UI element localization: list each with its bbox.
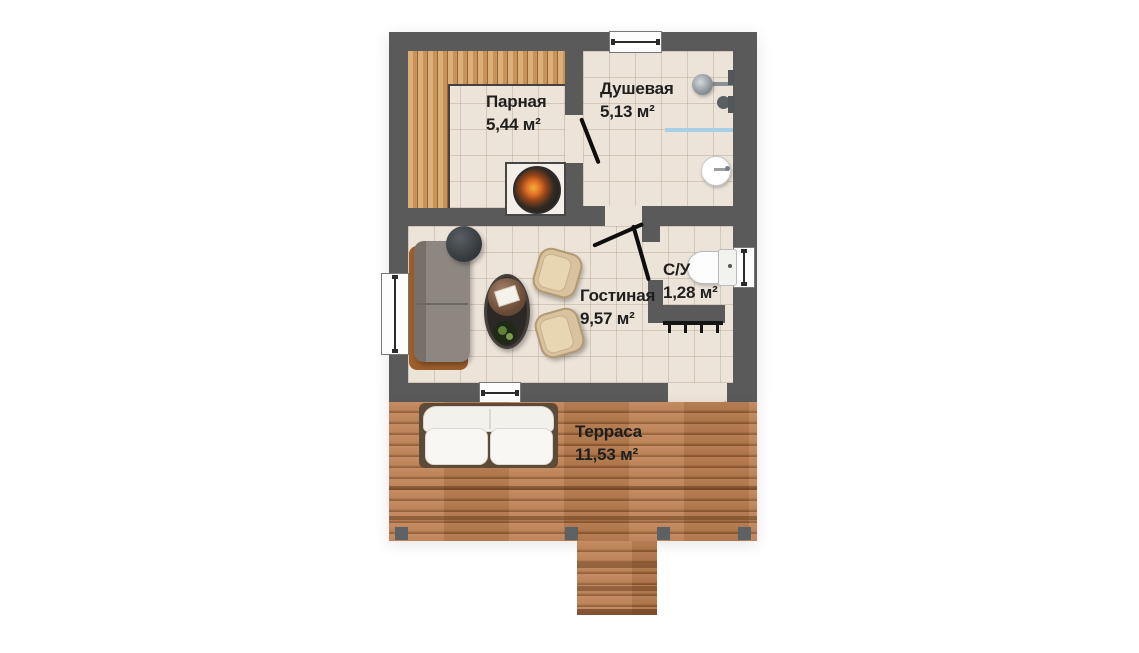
step-edge — [577, 609, 657, 615]
steps-icon — [577, 541, 657, 615]
floor-plan: Парная 5,44 м² Душевая 5,13 м² Гостиная … — [0, 0, 1139, 653]
dushevaya-door-gap — [605, 206, 642, 226]
shower-head-icon — [692, 74, 713, 95]
deck-post-icon — [657, 527, 670, 540]
sink-icon — [701, 156, 731, 186]
deck-seam — [389, 486, 757, 490]
bench-edge — [448, 84, 450, 208]
deck-post-icon — [395, 527, 408, 540]
room-label-gostinaya: Гостиная 9,57 м² — [580, 284, 655, 330]
room-area: 5,13 м² — [600, 100, 674, 123]
shower-glass-icon — [665, 128, 733, 132]
shower-wall-mount — [728, 70, 735, 85]
room-name: Парная — [486, 90, 547, 113]
sauna-bench-top — [448, 51, 565, 84]
plant-leaf — [506, 333, 513, 340]
window-icon — [609, 31, 662, 53]
room-area: 5,44 м² — [486, 113, 547, 136]
window-icon — [479, 382, 521, 403]
radiator-icon — [663, 321, 723, 325]
room-name: Терраса — [575, 420, 642, 443]
sink-faucet-dot — [725, 166, 730, 171]
room-area: 11,53 м² — [575, 443, 642, 466]
toilet-tank — [718, 249, 737, 286]
room-label-dushevaya: Душевая 5,13 м² — [600, 77, 674, 123]
wall-su-stub — [642, 226, 660, 242]
step-edge — [577, 563, 657, 568]
shower-wall-mount — [728, 96, 735, 113]
room-area: 9,57 м² — [580, 307, 655, 330]
room-name: С/У — [663, 258, 718, 281]
room-name: Гостиная — [580, 284, 655, 307]
terrace-sofa-cushion — [490, 428, 553, 465]
room-name: Душевая — [600, 77, 674, 100]
radiator-tick — [684, 325, 687, 333]
side-table-icon — [446, 226, 482, 262]
sauna-bench-left — [408, 51, 448, 208]
deck-post-icon — [738, 527, 751, 540]
deck-post-icon — [565, 527, 578, 540]
radiator-tick — [668, 325, 671, 333]
window-icon — [381, 273, 409, 355]
bench-edge — [448, 84, 565, 86]
stove-icon — [513, 166, 561, 214]
step-edge — [577, 586, 657, 591]
toilet-button — [728, 264, 732, 268]
sofa-seam — [417, 303, 467, 305]
room-label-parnaya: Парная 5,44 м² — [486, 90, 547, 136]
radiator-tick — [700, 325, 703, 333]
room-area: 1,28 м² — [663, 281, 718, 304]
terrace-sofa-cushion — [425, 428, 488, 465]
deck-seam — [389, 516, 757, 520]
room-label-su: С/У 1,28 м² — [663, 258, 718, 304]
room-label-terrasa: Терраса 11,53 м² — [575, 420, 642, 466]
terrace-door-gap — [668, 383, 727, 402]
steps-texture — [577, 541, 657, 615]
radiator-tick — [716, 325, 719, 333]
